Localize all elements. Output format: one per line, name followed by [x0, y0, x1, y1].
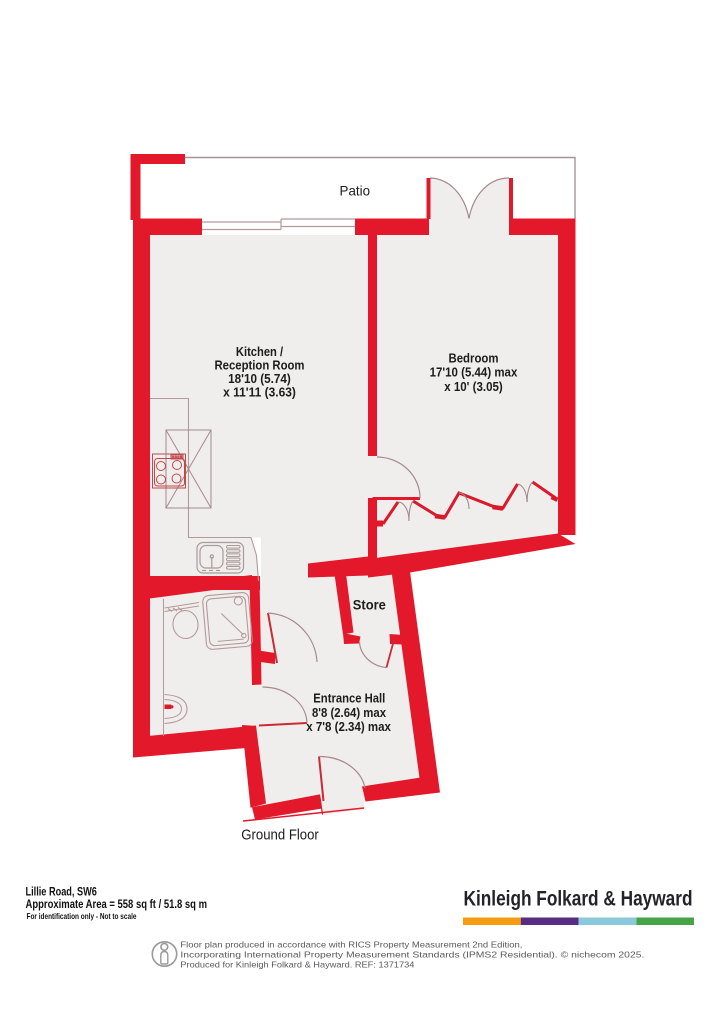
svg-text:8'8 (2.64) max: 8'8 (2.64) max — [312, 706, 386, 720]
svg-text:Produced for Kinleigh Folkard: Produced for Kinleigh Folkard & Hayward.… — [180, 960, 414, 969]
svg-text:Ground Floor: Ground Floor — [241, 827, 319, 843]
svg-text:Floor plan produced in accorda: Floor plan produced in accordance with R… — [180, 941, 522, 950]
svg-text:Kitchen /: Kitchen / — [236, 345, 284, 359]
svg-text:Entrance Hall: Entrance Hall — [313, 692, 385, 706]
svg-text:x 7'8 (2.34) max: x 7'8 (2.34) max — [306, 720, 391, 734]
svg-text:18'10 (5.74): 18'10 (5.74) — [228, 372, 291, 386]
svg-text:Incorporating International Pr: Incorporating International Property Mea… — [180, 950, 644, 959]
svg-text:For identification only - Not: For identification only - Not to scale — [27, 911, 137, 921]
svg-text:Bedroom: Bedroom — [449, 351, 499, 365]
svg-text:x 11'11 (3.63): x 11'11 (3.63) — [223, 386, 296, 400]
svg-text:x 10' (3.05): x 10' (3.05) — [444, 380, 503, 394]
svg-text:Kinleigh Folkard & Hayward: Kinleigh Folkard & Hayward — [464, 887, 693, 910]
svg-text:17'10 (5.44) max: 17'10 (5.44) max — [430, 366, 518, 380]
svg-text:Approximate Area = 558 sq ft /: Approximate Area = 558 sq ft / 51.8 sq m — [26, 897, 208, 911]
svg-text:Reception Room: Reception Room — [215, 359, 305, 373]
svg-text:Store: Store — [353, 597, 386, 613]
svg-text:Patio: Patio — [340, 182, 371, 198]
